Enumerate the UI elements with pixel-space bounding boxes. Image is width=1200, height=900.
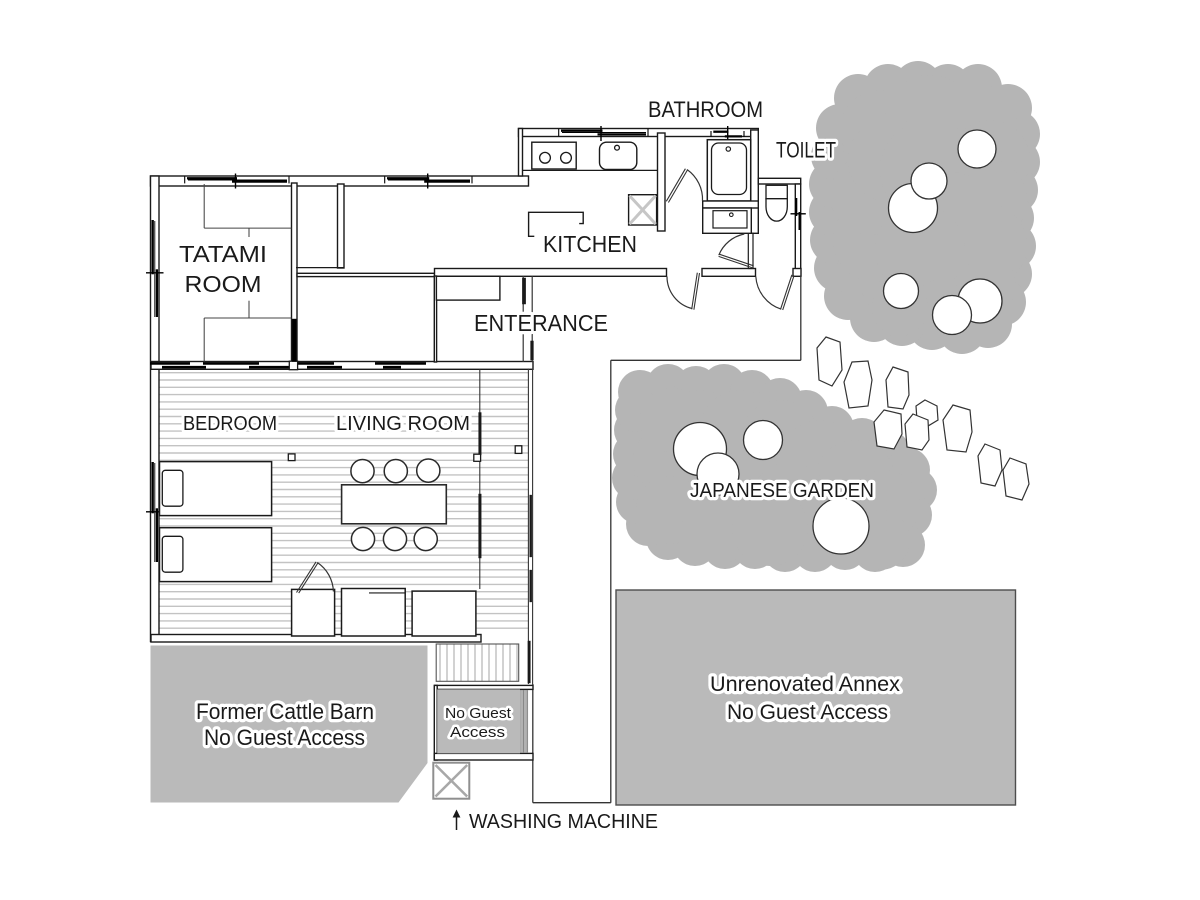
svg-text:No Guest Access: No Guest Access xyxy=(727,700,888,724)
svg-text:TATAMI: TATAMI xyxy=(179,241,267,267)
svg-text:Unrenovated Annex: Unrenovated Annex xyxy=(710,672,900,696)
svg-text:ROOM: ROOM xyxy=(185,271,262,297)
svg-text:WASHING MACHINE: WASHING MACHINE xyxy=(469,811,658,833)
svg-text:KITCHEN: KITCHEN xyxy=(543,231,637,257)
svg-text:Former Cattle Barn: Former Cattle Barn xyxy=(196,699,374,724)
svg-text:TOILET: TOILET xyxy=(776,138,836,163)
svg-text:Access: Access xyxy=(450,724,505,741)
svg-text:No Guest: No Guest xyxy=(445,705,512,722)
svg-text:ENTERANCE: ENTERANCE xyxy=(474,310,608,336)
svg-text:JAPANESE GARDEN: JAPANESE GARDEN xyxy=(690,480,874,502)
svg-text:No Guest Access: No Guest Access xyxy=(204,725,365,750)
svg-text:LIVING ROOM: LIVING ROOM xyxy=(336,413,470,435)
svg-text:BATHROOM: BATHROOM xyxy=(648,97,763,122)
svg-text:BEDROOM: BEDROOM xyxy=(183,413,277,435)
